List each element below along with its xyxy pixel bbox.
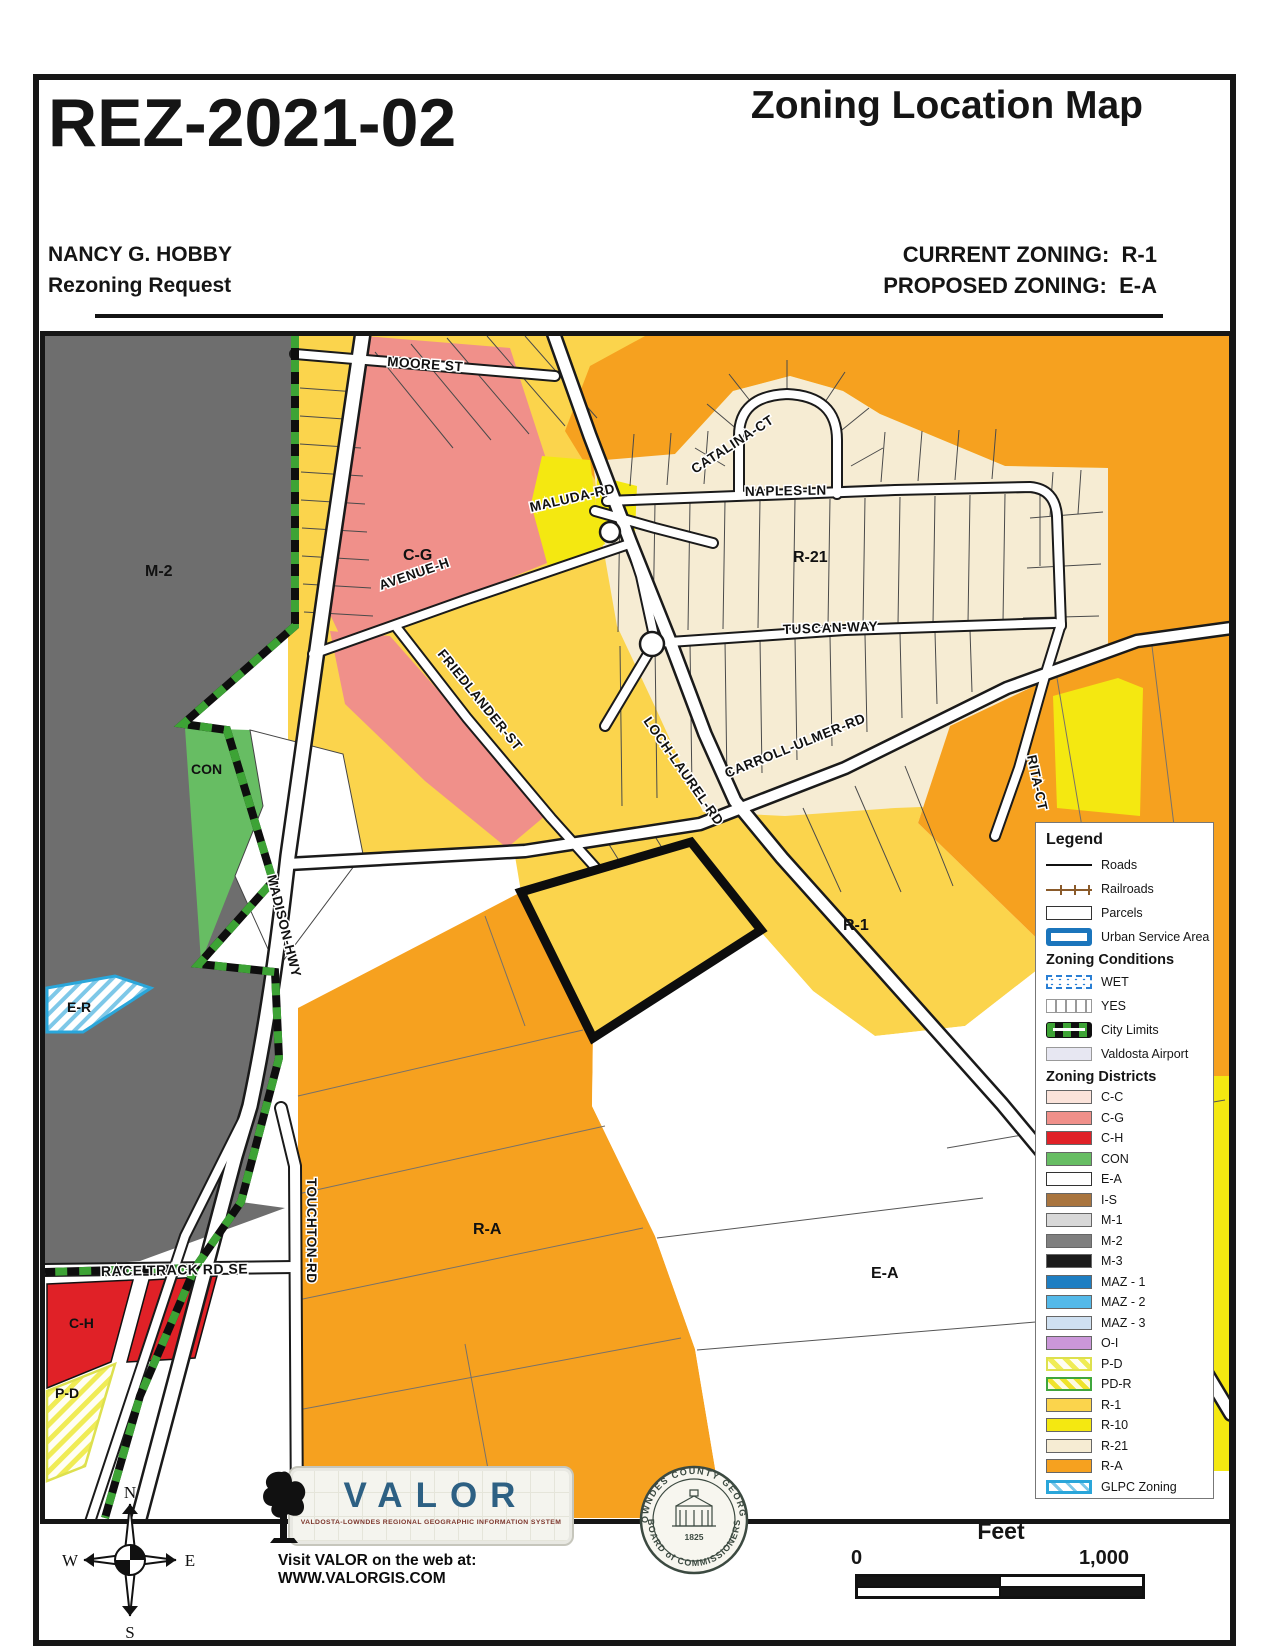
legend-item-yes: YES [1046, 994, 1209, 1018]
legend-item-label: Valdosta Airport [1101, 1047, 1188, 1061]
legend-item-label: I-S [1101, 1193, 1117, 1207]
legend-district-oi: O-I [1046, 1333, 1209, 1354]
legend-district-ra: R-A [1046, 1456, 1209, 1477]
district-swatch [1046, 1234, 1092, 1248]
legend-district-ch: C-H [1046, 1128, 1209, 1149]
district-swatch [1046, 1398, 1092, 1412]
roads-line-icon [1046, 858, 1092, 872]
district-swatch-pdr [1046, 1377, 1092, 1391]
legend-item-label: C-G [1101, 1111, 1124, 1125]
legend-item-valdosta-airport: Valdosta Airport [1046, 1042, 1209, 1066]
legend-district-maz2: MAZ - 2 [1046, 1292, 1209, 1313]
legend-item-label: YES [1101, 999, 1126, 1013]
valor-tree-icon [258, 1468, 310, 1544]
zone-label-r21: R-21 [793, 549, 828, 566]
legend-district-cc: C-C [1046, 1087, 1209, 1108]
scale-end-value: 1,000 [1079, 1547, 1129, 1570]
legend-district-r21: R-21 [1046, 1436, 1209, 1457]
zone-label-pd: P-D [55, 1385, 79, 1401]
legend-item-label: R-1 [1101, 1398, 1121, 1412]
legend-item-label: City Limits [1101, 1023, 1159, 1037]
district-swatch [1046, 1090, 1092, 1104]
zone-label-ra: R-A [473, 1221, 502, 1238]
legend-title: Legend [1046, 831, 1209, 849]
parcels-swatch [1046, 906, 1092, 920]
applicant-name: NANCY G. HOBBY [48, 243, 232, 267]
proposed-zoning: PROPOSED ZONING: E-A [883, 273, 1157, 299]
legend-item-label: C-C [1101, 1090, 1123, 1104]
legend-item-label: Railroads [1101, 882, 1154, 896]
valor-name: VALOR [290, 1476, 572, 1516]
street-label-race-track-rd-se: RACE TRACK RD SE [101, 1260, 248, 1279]
current-zoning-label: CURRENT ZONING: [903, 242, 1110, 267]
legend-item-label: R-21 [1101, 1439, 1128, 1453]
scale-start-value: 0 [851, 1547, 862, 1570]
compass-west-label: W [62, 1551, 79, 1570]
district-swatch [1046, 1295, 1092, 1309]
legend-districts-title: Zoning Districts [1046, 1069, 1209, 1085]
valor-logo: VALOR VALDOSTA-LOWNDES REGIONAL GEOGRAPH… [288, 1466, 574, 1546]
scale-units-label: Feet [845, 1518, 1157, 1545]
zone-r10-rita [1053, 678, 1143, 816]
legend-district-pd: P-D [1046, 1354, 1209, 1375]
legend-item-label: C-H [1101, 1131, 1123, 1145]
district-swatch [1046, 1172, 1092, 1186]
scale-numbers: 0 1,000 [845, 1547, 1157, 1570]
yes-swatch [1046, 999, 1092, 1013]
legend-district-m3: M-3 [1046, 1251, 1209, 1272]
proposed-zoning-value: E-A [1119, 273, 1157, 298]
legend-item-label: M-1 [1101, 1213, 1123, 1227]
valdosta-airport-swatch [1046, 1047, 1092, 1061]
wet-swatch [1046, 975, 1092, 989]
legend-item-label: M-3 [1101, 1254, 1123, 1268]
legend-item-label: MAZ - 3 [1101, 1316, 1145, 1330]
zoning-location-map-page: { "header": { "case_number": "REZ-2021-0… [0, 0, 1275, 1651]
valor-subtitle: VALDOSTA-LOWNDES REGIONAL GEOGRAPHIC INF… [290, 1519, 572, 1526]
district-swatch [1046, 1439, 1092, 1453]
district-swatch [1046, 1111, 1092, 1125]
scale-segment [1000, 1576, 1143, 1587]
district-swatch [1046, 1459, 1092, 1473]
legend-item-label: Parcels [1101, 906, 1143, 920]
current-zoning: CURRENT ZONING: R-1 [903, 242, 1157, 268]
zone-label-r1: R-1 [843, 917, 869, 934]
legend-item-parcels: Parcels [1046, 901, 1209, 925]
compass-south-label: S [125, 1623, 134, 1642]
district-swatch [1046, 1275, 1092, 1289]
zone-label-ea: E-A [871, 1265, 899, 1282]
proposed-zoning-label: PROPOSED ZONING: [883, 273, 1107, 298]
zone-label-cg: C-G [403, 547, 432, 564]
district-swatch [1046, 1193, 1092, 1207]
legend-item-label: GLPC Zoning [1101, 1480, 1177, 1494]
compass-north-label: N [124, 1483, 136, 1502]
zone-label-er: E-R [67, 999, 91, 1015]
scale-bar-block: Feet 0 1,000 [845, 1518, 1157, 1599]
scale-segment [857, 1587, 1000, 1598]
legend-item-label: R-A [1101, 1459, 1123, 1473]
legend: Legend Roads Railroads Parcels Urban Ser… [1035, 822, 1214, 1499]
district-swatch [1046, 1152, 1092, 1166]
compass-rose: N E S W [62, 1478, 198, 1642]
legend-district-con: CON [1046, 1149, 1209, 1170]
legend-item-label: E-A [1101, 1172, 1122, 1186]
zoning-map: MOORE ST CATALINA-CT MALUDA-RD NAPLES-LN… [40, 331, 1234, 1524]
valor-web-text: Visit VALOR on the web at: WWW.VALORGIS.… [278, 1552, 572, 1588]
legend-item-label: MAZ - 2 [1101, 1295, 1145, 1309]
legend-item-label: O-I [1101, 1336, 1118, 1350]
street-label-naples-ln: NAPLES-LN [745, 483, 827, 499]
legend-district-glpc: GLPC Zoning [1046, 1477, 1209, 1498]
scale-bar [855, 1574, 1145, 1599]
district-swatch [1046, 1336, 1092, 1350]
legend-item-label: CON [1101, 1152, 1129, 1166]
legend-conditions-title: Zoning Conditions [1046, 952, 1209, 968]
legend-district-m1: M-1 [1046, 1210, 1209, 1231]
legend-item-roads: Roads [1046, 853, 1209, 877]
zone-label-m2: M-2 [145, 563, 173, 580]
street-label-touchton-rd: TOUCHTON-RD [304, 1178, 319, 1284]
zone-label-con: CON [191, 761, 222, 777]
urban-service-area-swatch [1046, 928, 1092, 946]
legend-item-urban-service-area: Urban Service Area [1046, 925, 1209, 949]
legend-item-wet: WET [1046, 970, 1209, 994]
legend-item-city-limits: City Limits [1046, 1018, 1209, 1042]
current-zoning-value: R-1 [1122, 242, 1157, 267]
compass-east-label: E [185, 1551, 195, 1570]
legend-item-label: WET [1101, 975, 1129, 989]
legend-item-railroads: Railroads [1046, 877, 1209, 901]
legend-district-pd-r: PD-R [1046, 1374, 1209, 1395]
district-swatch-glpc [1046, 1480, 1092, 1494]
district-swatch-pd [1046, 1357, 1092, 1371]
scale-segment [1000, 1587, 1143, 1598]
seal-year: 1825 [685, 1532, 704, 1542]
legend-item-label: R-10 [1101, 1418, 1128, 1432]
request-type: Rezoning Request [48, 274, 231, 298]
legend-item-label: M-2 [1101, 1234, 1123, 1248]
legend-district-maz3: MAZ - 3 [1046, 1313, 1209, 1334]
header-divider [95, 314, 1163, 318]
district-swatch [1046, 1316, 1092, 1330]
legend-district-m2: M-2 [1046, 1231, 1209, 1252]
legend-item-label: PD-R [1101, 1377, 1132, 1391]
legend-item-label: Urban Service Area [1101, 930, 1209, 944]
city-limits-swatch [1046, 1022, 1092, 1038]
scale-segment [857, 1576, 1000, 1587]
valor-logo-block: VALOR VALDOSTA-LOWNDES REGIONAL GEOGRAPH… [272, 1466, 572, 1588]
district-swatch [1046, 1254, 1092, 1268]
legend-district-r10: R-10 [1046, 1415, 1209, 1436]
railroads-line-icon [1046, 882, 1092, 896]
legend-item-label: P-D [1101, 1357, 1123, 1371]
county-seal: LOWNDES COUNTY GEORGIA BOARD of COMMISSI… [638, 1464, 750, 1576]
zone-label-ch: C-H [69, 1315, 94, 1331]
legend-district-cg: C-G [1046, 1108, 1209, 1129]
district-swatch [1046, 1131, 1092, 1145]
legend-district-ea: E-A [1046, 1169, 1209, 1190]
legend-item-label: MAZ - 1 [1101, 1275, 1145, 1289]
legend-item-label: Roads [1101, 858, 1137, 872]
legend-district-r1: R-1 [1046, 1395, 1209, 1416]
legend-district-is: I-S [1046, 1190, 1209, 1211]
district-swatch [1046, 1418, 1092, 1432]
district-swatch [1046, 1213, 1092, 1227]
legend-district-maz1: MAZ - 1 [1046, 1272, 1209, 1293]
case-number: REZ-2021-02 [48, 84, 456, 162]
page-title: Zoning Location Map [751, 84, 1143, 128]
